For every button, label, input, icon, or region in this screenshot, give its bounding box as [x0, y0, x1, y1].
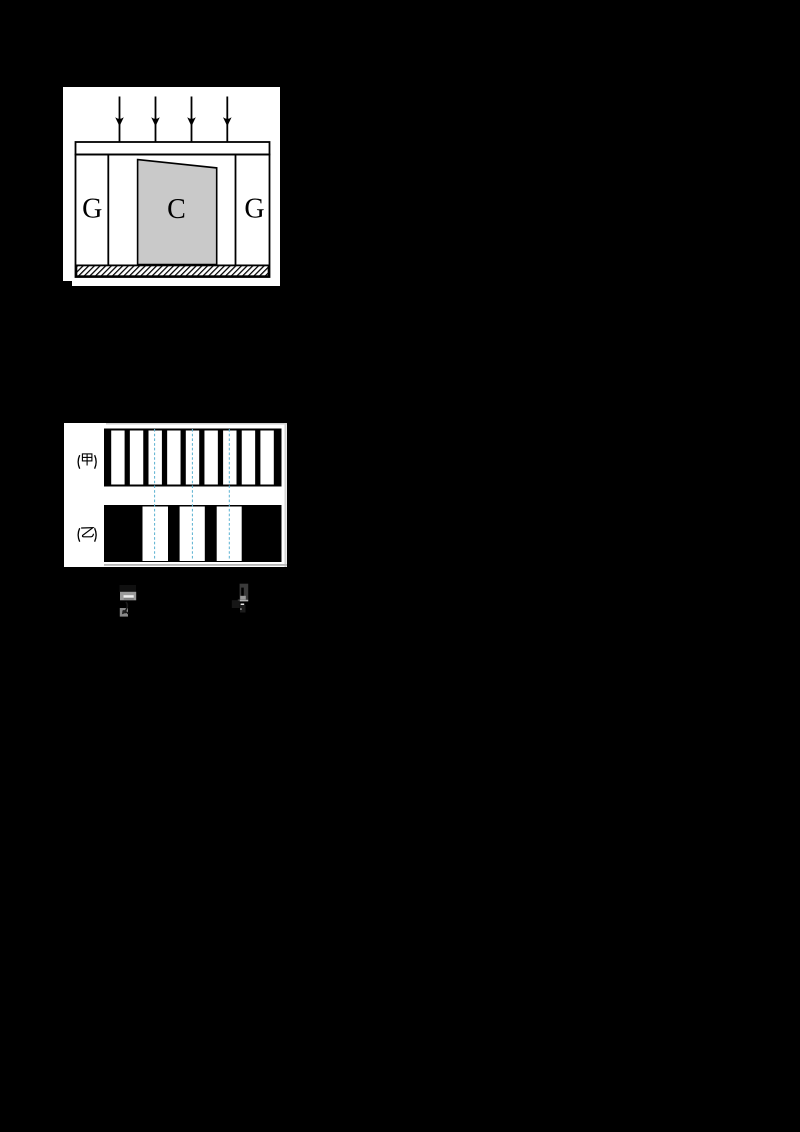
- svg-text:G: G: [82, 194, 102, 225]
- svg-text:G: G: [244, 194, 264, 225]
- svg-text:C: C: [167, 194, 186, 225]
